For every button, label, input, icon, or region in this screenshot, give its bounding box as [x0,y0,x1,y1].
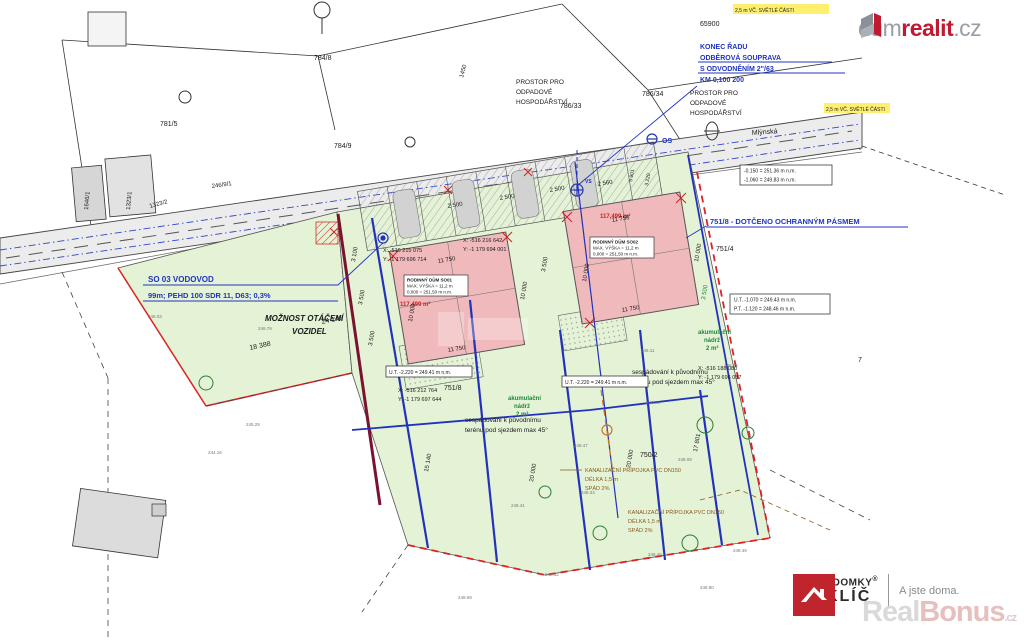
annotation-vs: VS [585,179,592,185]
svg-text:ODPADOVÉ: ODPADOVÉ [516,87,553,96]
svg-text:DÉLKA 1,5 m: DÉLKA 1,5 m [628,518,661,525]
svg-text:X: -516 212 764: X: -516 212 764 [398,388,437,394]
svg-text:MAX. VÝŠKA = 11,2 m: MAX. VÝŠKA = 11,2 m [407,283,453,289]
svg-text:HOSPODÁŘSTVÍ: HOSPODÁŘSTVÍ [690,108,742,117]
svg-text:akumulační: akumulační [698,330,731,336]
svg-text:KANALIZAČNÍ PŘÍPOJKA PVC DN150: KANALIZAČNÍ PŘÍPOJKA PVC DN150 [585,466,681,474]
svg-text:65900: 65900 [700,21,720,28]
svg-text:X: -516 215 075: X: -516 215 075 [383,248,422,254]
svg-text:RODINNÝ DŮM SO02: RODINNÝ DŮM SO02 [593,238,639,245]
svg-text:246/9/1: 246/9/1 [211,181,232,190]
svg-text:nádrž: nádrž [514,404,530,410]
site-plan-drawing: 2,5 m VČ. SVĚTLÉ ČÁSTI 2,5 m VČ. SVĚTLÉ … [0,0,1024,640]
svg-text:-1.060 = 249.83 m n.m.: -1.060 = 249.83 m n.m. [744,178,796,184]
svg-text:-0.150 = 251.36 m n.m.: -0.150 = 251.36 m n.m. [744,169,796,175]
svg-text:KANALIZAČNÍ PŘÍPOJKA PVC DN150: KANALIZAČNÍ PŘÍPOJKA PVC DN150 [628,508,724,516]
svg-text:784/8: 784/8 [314,55,332,62]
svg-text:2 m³: 2 m³ [516,411,528,418]
svg-text:2 m³: 2 m³ [706,345,718,352]
svg-text:248.80: 248.80 [700,585,714,590]
svg-text:Y: -1 179 697 644: Y: -1 179 697 644 [398,397,441,403]
svg-text:KONEC ŘADU: KONEC ŘADU [700,42,747,51]
svg-text:246.11: 246.11 [641,348,655,353]
svg-text:KM 0,100 200: KM 0,100 200 [700,77,744,84]
building-footprint [88,12,126,46]
svg-text:248.41: 248.41 [511,503,525,508]
svg-text:Y: -1 179 696 714: Y: -1 179 696 714 [383,257,426,263]
annotation-konec-radu: KONEC ŘADU ODBĚROVÁ SOUPRAVA S ODVODNĚNÍ… [700,42,781,84]
svg-text:99m; PEHD 100 SDR 11, D63; 0,3: 99m; PEHD 100 SDR 11, D63; 0,3% [148,291,271,300]
svg-text:U.T. -2.220 = 249.41 m n.m.: U.T. -2.220 = 249.41 m n.m. [565,380,627,386]
svg-text:246.79: 246.79 [258,326,272,331]
svg-text:SPÁD 2%: SPÁD 2% [628,527,653,534]
svg-text:nádrž: nádrž [704,338,720,344]
svg-text:ODBĚROVÁ SOUPRAVA: ODBĚROVÁ SOUPRAVA [700,53,781,62]
svg-text:PROSTOR PRO: PROSTOR PRO [516,79,564,86]
site-plan-page: 2,5 m VČ. SVĚTLÉ ČÁSTI 2,5 m VČ. SVĚTLÉ … [0,0,1024,640]
svg-text:248.33: 248.33 [581,490,595,495]
svg-text:S ODVODNĚNÍM 2"/63: S ODVODNĚNÍM 2"/63 [700,64,774,73]
svg-text:DÉLKA 1,5 m: DÉLKA 1,5 m [585,476,618,483]
building-footprint [73,488,166,557]
svg-text:750/2: 750/2 [640,452,658,459]
annotation-os: OS [662,138,672,145]
svg-text:786/33: 786/33 [560,103,582,110]
annotation-prostor-2: PROSTOR PRO ODPADOVÉ HOSPODÁŘSTVÍ [690,90,742,117]
zdene-domky-logo-icon [793,574,835,616]
svg-text:SO 03 VODOVOD: SO 03 VODOVOD [148,275,214,284]
svg-text:248.09: 248.09 [678,457,692,462]
annotation-prostor-1: PROSTOR PRO ODPADOVÉ HOSPODÁŘSTVÍ [516,79,568,106]
svg-text:akumulační: akumulační [508,396,541,402]
svg-text:sespádování k původnímu: sespádování k původnímu [465,416,541,424]
svg-text:terénu pod sjezdem max 45°: terénu pod sjezdem max 45° [465,426,548,434]
svg-text:sespádování k původnímu: sespádování k původnímu [632,368,708,376]
svg-text:246.03: 246.03 [148,314,162,319]
realbonus-watermark: RealBonus.cz [862,596,1016,629]
highlight-note: 2,5 m VČ. SVĚTLÉ ČÁSTI [826,105,885,113]
svg-text:248.45: 248.45 [648,552,662,557]
svg-text:246.22: 246.22 [724,363,738,368]
svg-text:ODPADOVÉ: ODPADOVÉ [690,98,727,107]
svg-text:248.47: 248.47 [574,443,588,448]
svg-text:1450: 1450 [459,63,468,78]
svg-text:Y: -1 179 694 001: Y: -1 179 694 001 [463,247,506,253]
svg-text:RODINNÝ DŮM SO01: RODINNÝ DŮM SO01 [407,276,453,283]
svg-text:0,000 = 251,50 m n.m.: 0,000 = 251,50 m n.m. [593,252,638,257]
svg-text:248.49: 248.49 [733,548,747,553]
svg-text:751/8: 751/8 [444,385,462,392]
svg-text:U.T. -1.070 = 249.43 m n.m.: U.T. -1.070 = 249.43 m n.m. [734,298,796,304]
svg-text:751/4: 751/4 [716,246,734,253]
svg-text:X: -516 216 642: X: -516 216 642 [463,238,502,244]
svg-text:245.29: 245.29 [246,422,260,427]
annotation-dotceno: 751/8 - DOTČENO OCHRANNÝM PÁSMEM [710,217,860,226]
svg-text:781/5: 781/5 [160,121,178,128]
svg-text:Y: -1 179 696 087: Y: -1 179 696 087 [698,375,741,381]
svg-text:786/34: 786/34 [642,91,664,98]
svg-text:U.T. -2.220 = 249.41 m n.m.: U.T. -2.220 = 249.41 m n.m. [389,370,451,376]
manhole-symbols [179,2,720,147]
highlight-note: 2,5 m VČ. SVĚTLÉ ČÁSTI [735,6,794,14]
svg-text:248.62: 248.62 [545,572,559,577]
dumrealit-logo: dumrealit.cz [858,10,1018,46]
svg-text:0,000 = 251,50 m n.m.: 0,000 = 251,50 m n.m. [407,290,452,295]
svg-text:244.16: 244.16 [208,450,222,455]
svg-text:P.T. -1.120 = 248.46 m n.m.: P.T. -1.120 = 248.46 m n.m. [734,307,795,313]
svg-text:7: 7 [858,357,862,364]
dumrealit-logo-icon [858,10,888,40]
svg-text:248.51: 248.51 [646,400,660,405]
svg-text:784/9: 784/9 [334,143,352,150]
svg-text:VOZIDEL: VOZIDEL [292,327,327,336]
shed-footprint [152,504,166,516]
svg-text:MAX. VÝŠKA = 11,2 m: MAX. VÝŠKA = 11,2 m [593,245,639,251]
svg-text:248.69: 248.69 [458,595,472,600]
svg-text:PROSTOR PRO: PROSTOR PRO [690,90,738,97]
